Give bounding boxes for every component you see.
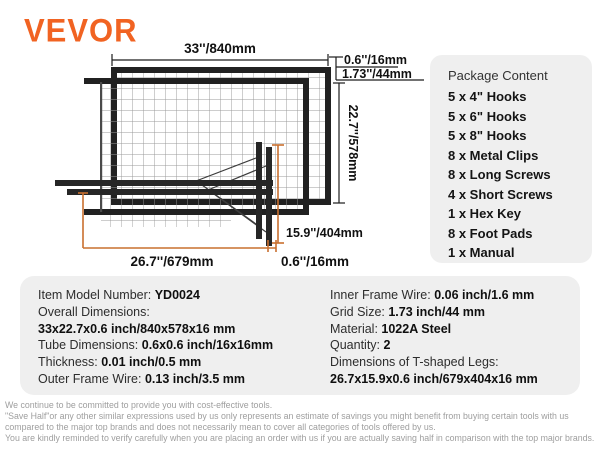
spec-label: Quantity:: [330, 338, 384, 352]
grid-panel-front: [84, 78, 309, 227]
dim-tube-bottom-label: 0.6''/16mm: [281, 254, 349, 269]
spec-label: Tube Dimensions:: [38, 338, 142, 352]
spec-value: 0.6x0.6 inch/16x16mm: [142, 338, 273, 352]
spec-label: Grid Size:: [330, 305, 388, 319]
spec-value: 1.73 inch/44 mm: [388, 305, 485, 319]
disclaimer-line: "Save Half"or any other similar expressi…: [5, 411, 597, 422]
footer-disclaimer: We continue to be committed to provide y…: [5, 400, 597, 444]
spec-value: 2: [384, 338, 391, 352]
package-content-panel: Package Content 5 x 4" Hooks 5 x 6" Hook…: [430, 55, 592, 263]
package-item: 1 x Hex Key: [448, 204, 592, 224]
spec-row: 33x22.7x0.6 inch/840x578x16 mm: [38, 321, 330, 338]
spec-label: Material:: [330, 322, 381, 336]
specifications-panel: Item Model Number: YD0024 Overall Dimens…: [20, 276, 580, 395]
spec-row: Inner Frame Wire: 0.06 inch/1.6 mm: [330, 287, 538, 304]
spec-row: Outer Frame Wire: 0.13 inch/3.5 mm: [38, 371, 330, 388]
package-item: 1 x Manual: [448, 243, 592, 263]
package-content-title: Package Content: [448, 68, 592, 83]
spec-column-left: Item Model Number: YD0024 Overall Dimens…: [38, 287, 330, 395]
spec-label: Item Model Number:: [38, 288, 155, 302]
package-item: 5 x 8" Hooks: [448, 126, 592, 146]
package-item: 5 x 4" Hooks: [448, 87, 592, 107]
dim-grid-cell-label: 1.73''/44mm: [342, 67, 412, 81]
disclaimer-line: You are kindly reminded to verify carefu…: [5, 433, 597, 444]
spec-label: Overall Dimensions:: [38, 305, 150, 319]
dim-width-top-label: 33''/840mm: [184, 41, 256, 56]
spec-row: Quantity: 2: [330, 337, 538, 354]
spec-value: 33x22.7x0.6 inch/840x578x16 mm: [38, 322, 235, 336]
spec-value: YD0024: [155, 288, 200, 302]
spec-row: Material: 1022A Steel: [330, 321, 538, 338]
spec-value: 0.01 inch/0.5 mm: [101, 355, 201, 369]
spec-value: 0.13 inch/3.5 mm: [145, 372, 245, 386]
spec-label: Dimensions of T-shaped Legs:: [330, 355, 499, 369]
spec-row: 26.7x15.9x0.6 inch/679x404x16 mm: [330, 371, 538, 388]
package-item: 5 x 6" Hooks: [448, 107, 592, 127]
spec-row: Dimensions of T-shaped Legs:: [330, 354, 538, 371]
spec-row: Overall Dimensions:: [38, 304, 330, 321]
package-item: 8 x Foot Pads: [448, 224, 592, 244]
disclaimer-line: compared to the major top brands and doe…: [5, 422, 597, 433]
spec-value: 26.7x15.9x0.6 inch/679x404x16 mm: [330, 372, 538, 386]
product-spec-image: VEVOR: [0, 0, 600, 450]
dim-leg-length-label: 26.7''/679mm: [131, 254, 214, 269]
spec-label: Outer Frame Wire:: [38, 372, 145, 386]
spec-row: Tube Dimensions: 0.6x0.6 inch/16x16mm: [38, 337, 330, 354]
spec-column-right: Inner Frame Wire: 0.06 inch/1.6 mm Grid …: [330, 287, 538, 395]
spec-row: Thickness: 0.01 inch/0.5 mm: [38, 354, 330, 371]
spec-row: Grid Size: 1.73 inch/44 mm: [330, 304, 538, 321]
package-item: 8 x Metal Clips: [448, 146, 592, 166]
disclaimer-line: We continue to be committed to provide y…: [5, 400, 597, 411]
dim-tube-top-label: 0.6''/16mm: [344, 53, 407, 67]
package-item: 8 x Long Screws: [448, 165, 592, 185]
package-item: 4 x Short Screws: [448, 185, 592, 205]
spec-label: Inner Frame Wire:: [330, 288, 434, 302]
dim-leg-height-label: 15.9''/404mm: [286, 226, 363, 240]
dim-height-right-label: 22.7''/578mm: [346, 105, 360, 182]
spec-label: Thickness:: [38, 355, 101, 369]
spec-value: 0.06 inch/1.6 mm: [434, 288, 534, 302]
spec-value: 1022A Steel: [381, 322, 451, 336]
spec-row: Item Model Number: YD0024: [38, 287, 330, 304]
